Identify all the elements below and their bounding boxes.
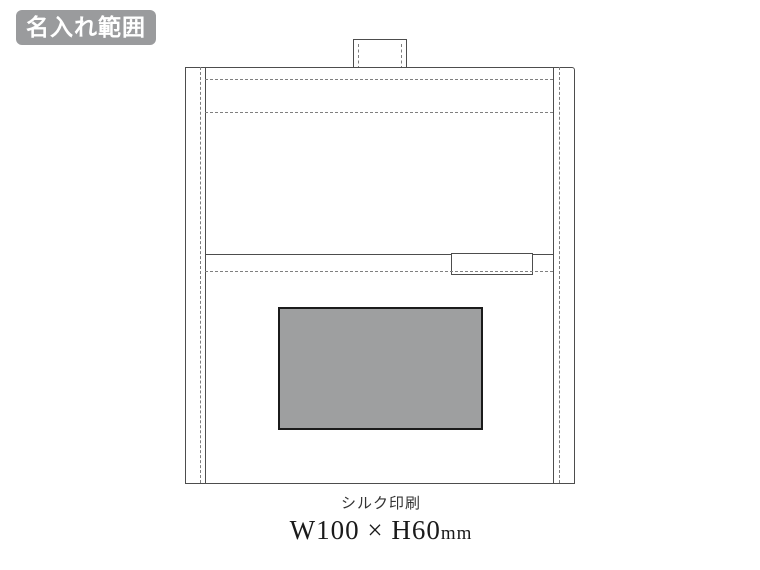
tab-stitch-line-right [401,44,402,69]
caption-size-value: W100 × H60 [290,515,441,545]
top-stitch-line-2 [205,112,553,113]
top-stitch-line-1 [205,79,553,80]
bag-handle-tab [353,39,407,69]
product-print-area-diagram: 名入れ範囲 シルク印刷 W100 × H60mm [0,0,760,570]
print-area-badge: 名入れ範囲 [16,10,156,45]
caption: シルク印刷 W100 × H60mm [185,494,577,550]
caption-print-method: シルク印刷 [185,494,577,514]
middle-stitch-line [205,271,553,272]
left-stitch-line [200,67,201,483]
left-seam-line [205,67,206,483]
caption-print-size: W100 × H60mm [185,514,577,550]
caption-size-unit: mm [441,523,473,544]
right-seam-line [553,67,554,483]
tab-stitch-line-left [358,44,359,69]
print-area-rect [278,307,483,430]
right-stitch-line [559,67,560,483]
